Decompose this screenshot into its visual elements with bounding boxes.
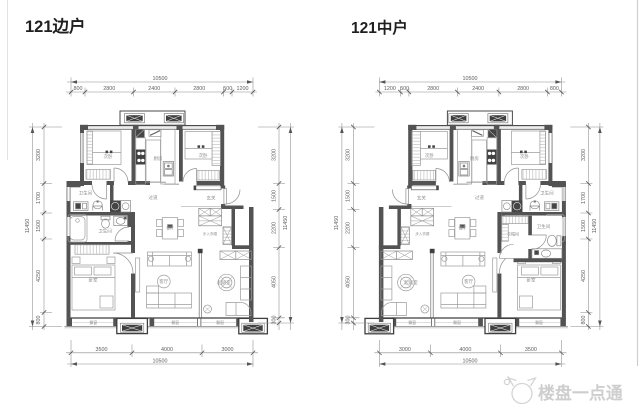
svg-text:2400: 2400	[148, 86, 160, 92]
svg-text:4250: 4250	[581, 270, 587, 282]
svg-text:2800: 2800	[103, 86, 115, 92]
svg-text:厨房: 厨房	[470, 155, 479, 162]
svg-text:1500: 1500	[581, 220, 587, 232]
svg-text:11450: 11450	[25, 219, 31, 234]
svg-text:3000: 3000	[222, 347, 234, 353]
svg-text:2400: 2400	[472, 86, 484, 92]
svg-text:3200: 3200	[581, 149, 587, 161]
svg-text:2200: 2200	[272, 222, 278, 234]
svg-text:衣帽间: 衣帽间	[507, 231, 519, 237]
svg-text:卫生间: 卫生间	[537, 223, 551, 230]
svg-text:300: 300	[346, 316, 352, 325]
svg-text:11450: 11450	[334, 216, 340, 231]
svg-text:800: 800	[74, 86, 83, 92]
svg-text:500: 500	[223, 86, 232, 92]
svg-text:1700: 1700	[36, 192, 42, 204]
svg-text:卫生间: 卫生间	[540, 190, 554, 197]
svg-text:3000: 3000	[399, 347, 411, 353]
svg-text:300: 300	[272, 316, 278, 325]
svg-text:次卧: 次卧	[520, 153, 529, 160]
svg-text:客厅: 客厅	[464, 278, 473, 285]
svg-text:11450: 11450	[283, 216, 289, 231]
svg-text:过道: 过道	[475, 194, 484, 201]
svg-text:飘窗: 飘窗	[172, 320, 180, 325]
svg-text:4250: 4250	[36, 270, 42, 282]
svg-text:次卧: 次卧	[425, 152, 434, 159]
svg-text:3200: 3200	[346, 149, 352, 161]
svg-text:1200: 1200	[384, 86, 396, 92]
svg-text:800: 800	[581, 316, 587, 325]
svg-text:玄关: 玄关	[207, 195, 216, 202]
svg-text:10500: 10500	[463, 76, 478, 82]
svg-text:飘窗: 飘窗	[216, 320, 224, 325]
svg-text:121中户: 121中户	[351, 18, 408, 37]
svg-text:餐厅: 餐厅	[166, 226, 174, 231]
svg-text:餐厅: 餐厅	[459, 226, 467, 231]
svg-text:飘窗: 飘窗	[90, 320, 98, 325]
svg-text:1500: 1500	[346, 190, 352, 202]
svg-text:次卧: 次卧	[199, 152, 208, 159]
svg-text:4000: 4000	[161, 347, 173, 353]
svg-text:客厅: 客厅	[159, 278, 168, 285]
svg-text:3500: 3500	[96, 347, 108, 353]
svg-text:2800: 2800	[427, 86, 439, 92]
svg-text:3200: 3200	[36, 149, 42, 161]
svg-text:2200: 2200	[346, 222, 352, 234]
svg-text:2800: 2800	[517, 86, 529, 92]
svg-text:800: 800	[550, 86, 559, 92]
svg-text:卫生间: 卫生间	[79, 190, 93, 197]
svg-text:800: 800	[36, 316, 42, 325]
svg-text:飘窗: 飘窗	[453, 320, 461, 325]
svg-text:次卧: 次卧	[104, 153, 113, 160]
svg-text:10500: 10500	[153, 359, 168, 365]
svg-text:厨房: 厨房	[154, 155, 163, 162]
svg-text:2800: 2800	[193, 86, 205, 92]
svg-text:飘窗: 飘窗	[409, 320, 417, 325]
svg-text:500: 500	[400, 86, 409, 92]
svg-text:卧室: 卧室	[89, 277, 98, 284]
svg-text:起居室: 起居室	[404, 279, 418, 286]
svg-text:玄关: 玄关	[417, 195, 426, 202]
svg-text:3500: 3500	[525, 347, 537, 353]
svg-text:1200: 1200	[237, 86, 249, 92]
svg-text:4050: 4050	[272, 276, 278, 288]
svg-text:步入衣帽: 步入衣帽	[203, 231, 217, 236]
svg-text:3200: 3200	[272, 149, 278, 161]
svg-text:121边户: 121边户	[25, 16, 86, 36]
svg-text:1500: 1500	[272, 190, 278, 202]
svg-text:过道: 过道	[149, 194, 158, 201]
svg-text:10500: 10500	[463, 359, 478, 365]
svg-text:飘窗: 飘窗	[535, 320, 543, 325]
svg-text:11450: 11450	[592, 219, 598, 234]
svg-text:1500: 1500	[36, 220, 42, 232]
svg-text:楼盘一点通: 楼盘一点通	[538, 383, 623, 403]
svg-text:4000: 4000	[459, 347, 471, 353]
svg-text:卧室: 卧室	[527, 277, 536, 284]
svg-text:起居室: 起居室	[217, 279, 231, 286]
svg-text:4050: 4050	[346, 276, 352, 288]
svg-text:卫生间: 卫生间	[98, 228, 112, 235]
svg-text:1700: 1700	[581, 192, 587, 204]
svg-text:步入衣帽: 步入衣帽	[415, 231, 429, 236]
svg-text:10500: 10500	[153, 76, 168, 82]
